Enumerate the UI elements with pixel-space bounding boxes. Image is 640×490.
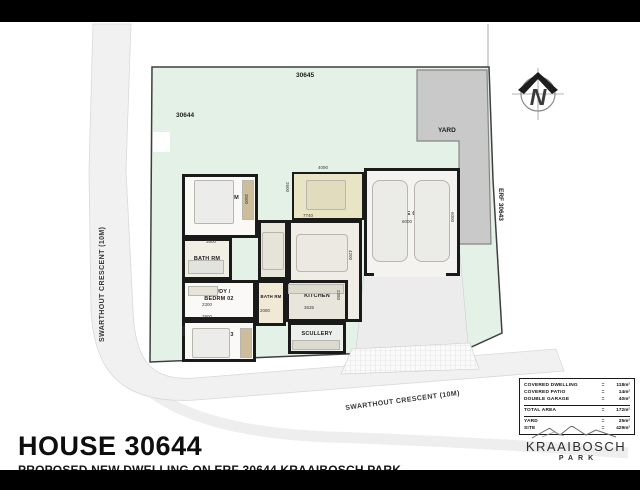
equals-sign: = (598, 382, 608, 389)
dimension-2300-2: 2300 (202, 302, 212, 307)
north-compass: N (510, 66, 566, 122)
area-row-2: DOUBLE GARAGE=40m² (524, 396, 630, 403)
bed-03 (192, 328, 230, 358)
erf-30644-label: 30644 (176, 112, 194, 119)
dimension-3635-6: 3635 (304, 305, 314, 310)
area-row-value: 40m² (608, 396, 630, 403)
dimension-3500-1: 3500 (244, 194, 249, 204)
area-row-label: TOTAL AREA (524, 407, 598, 414)
equals-sign: = (598, 396, 608, 403)
area-row-value: 118m² (608, 382, 630, 389)
area-row-label: COVERED DWELLING (524, 382, 598, 389)
letterbox-bottom (0, 470, 640, 490)
scullery-label: SCULLERY (301, 331, 332, 338)
patio-set (306, 180, 346, 210)
table-rule (524, 416, 630, 417)
sheet-title: HOUSE 30644 (18, 432, 401, 462)
area-row-1: COVERED PATIO=14m² (524, 389, 630, 396)
compass-north-letter: N (530, 84, 547, 110)
scullery-unit (292, 340, 340, 350)
garage-door-opening (374, 271, 446, 277)
dimension-3900-0: 3900 (206, 239, 216, 244)
area-row-value: 14m² (608, 389, 630, 396)
equals-sign: = (598, 407, 608, 414)
desk-study (188, 286, 218, 296)
dimension-2900-3: 2900 (202, 314, 212, 319)
dimension-4200-11: 4200 (348, 250, 353, 260)
bathroom-2: BATH RM (256, 280, 286, 326)
area-row-label: DOUBLE GARAGE (524, 396, 598, 403)
equals-sign: = (598, 389, 608, 396)
screenshot-canvas: MAIN BEDRMBATH RMSTUDY / BEDRM 02BEDRM 0… (0, 0, 640, 490)
area-row-value: 172m² (608, 407, 630, 414)
letterbox-top (0, 0, 640, 22)
bathroom-2-label: BATH RM (261, 294, 282, 299)
dimension-2080-5: 2080 (260, 308, 270, 313)
mountain-icon (528, 424, 624, 440)
bath1-fixtures (188, 260, 224, 274)
dimension-2380-7: 2380 (336, 290, 341, 300)
street-bottom-label: SWARTHOUT CRESCENT (10M) (345, 390, 460, 412)
dimension-3000-4: 3000 (181, 326, 186, 336)
erf-30645-label: 30645 (296, 72, 314, 79)
area-row-label: COVERED PATIO (524, 389, 598, 396)
logo-brand-text: KRAAIBOSCH (514, 440, 638, 454)
yard-label: YARD (438, 127, 456, 134)
area-row-3: TOTAL AREA=172m² (524, 407, 630, 414)
logo-sub-text: PARK (514, 455, 638, 462)
title-block: HOUSE 30644 PROPOSED NEW DWELLING ON ERF… (18, 432, 401, 470)
sheet-subtitle: PROPOSED NEW DWELLING ON ERF 30644 KRAAI… (18, 463, 401, 470)
street-left-label: SWARTHOUT CRESCENT (10M) (99, 227, 106, 342)
area-row-0: COVERED DWELLING=118m² (524, 382, 630, 389)
car-2 (414, 180, 450, 262)
dimension-6000-12: 6000 (402, 219, 412, 224)
table-rule (524, 405, 630, 406)
kraaibosch-park-logo: KRAAIBOSCH PARK (514, 424, 638, 462)
dimension-7740-10: 7740 (303, 213, 313, 218)
bed-main (194, 180, 234, 224)
dimension-6000-13: 6000 (450, 212, 455, 222)
drawing-sheet: MAIN BEDRMBATH RMSTUDY / BEDRM 02BEDRM 0… (0, 22, 640, 470)
erf-30643-label: ERF 30643 (497, 188, 504, 221)
dimension-4090-8: 4090 (318, 165, 328, 170)
dimension-2600-9: 2600 (285, 182, 290, 192)
wardrobe-03 (240, 328, 252, 358)
dining-table (262, 232, 284, 270)
lounge-sofa (296, 234, 348, 272)
